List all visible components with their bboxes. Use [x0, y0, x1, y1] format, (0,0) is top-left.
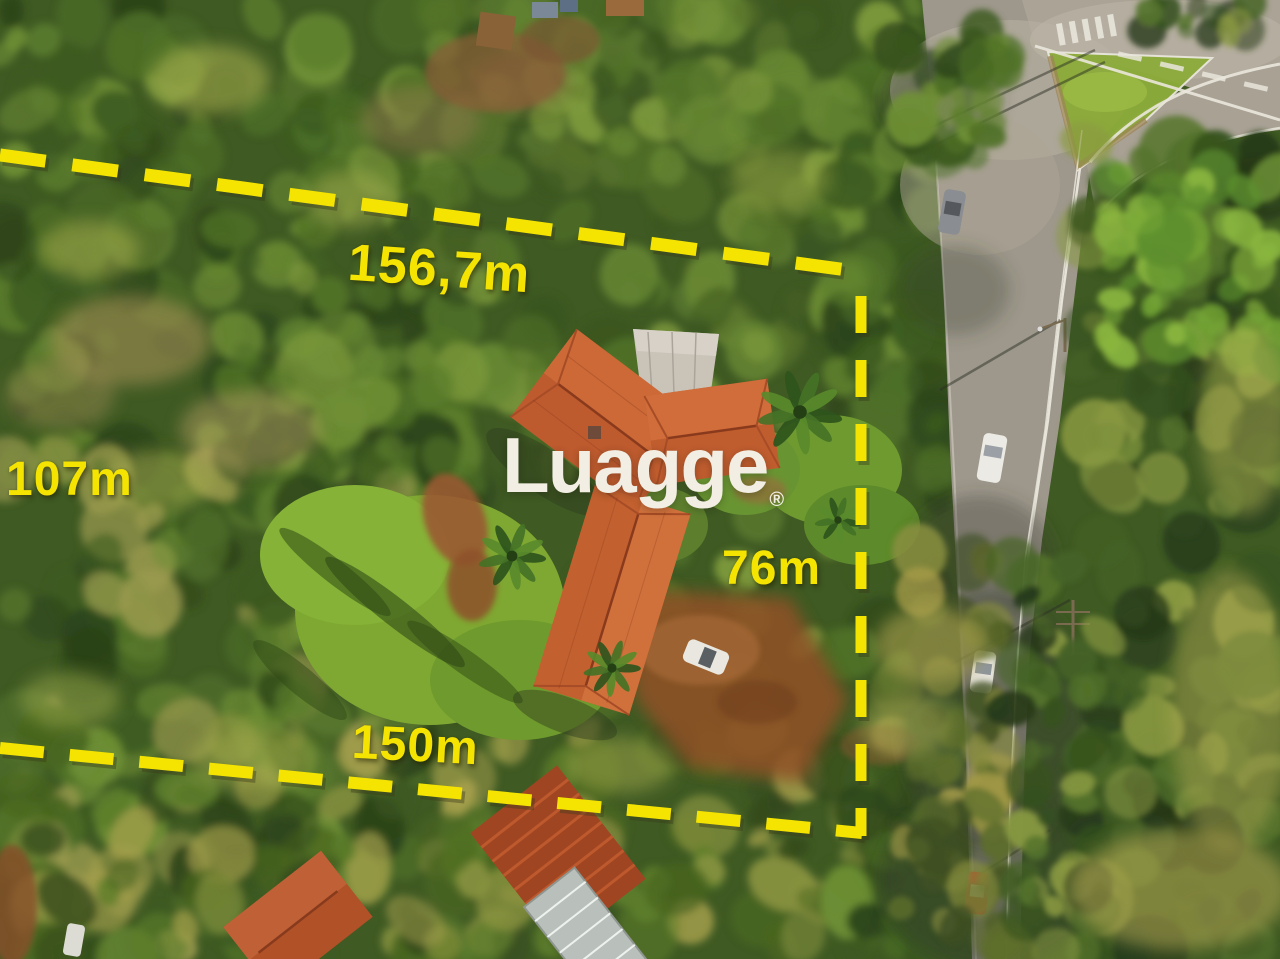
aerial-photo-scene [0, 0, 1280, 959]
roof-wing-right [644, 379, 779, 485]
aerial-property-photo: 156,7m 107m 76m 150m Luagge® [0, 0, 1280, 959]
chimney [588, 426, 601, 439]
